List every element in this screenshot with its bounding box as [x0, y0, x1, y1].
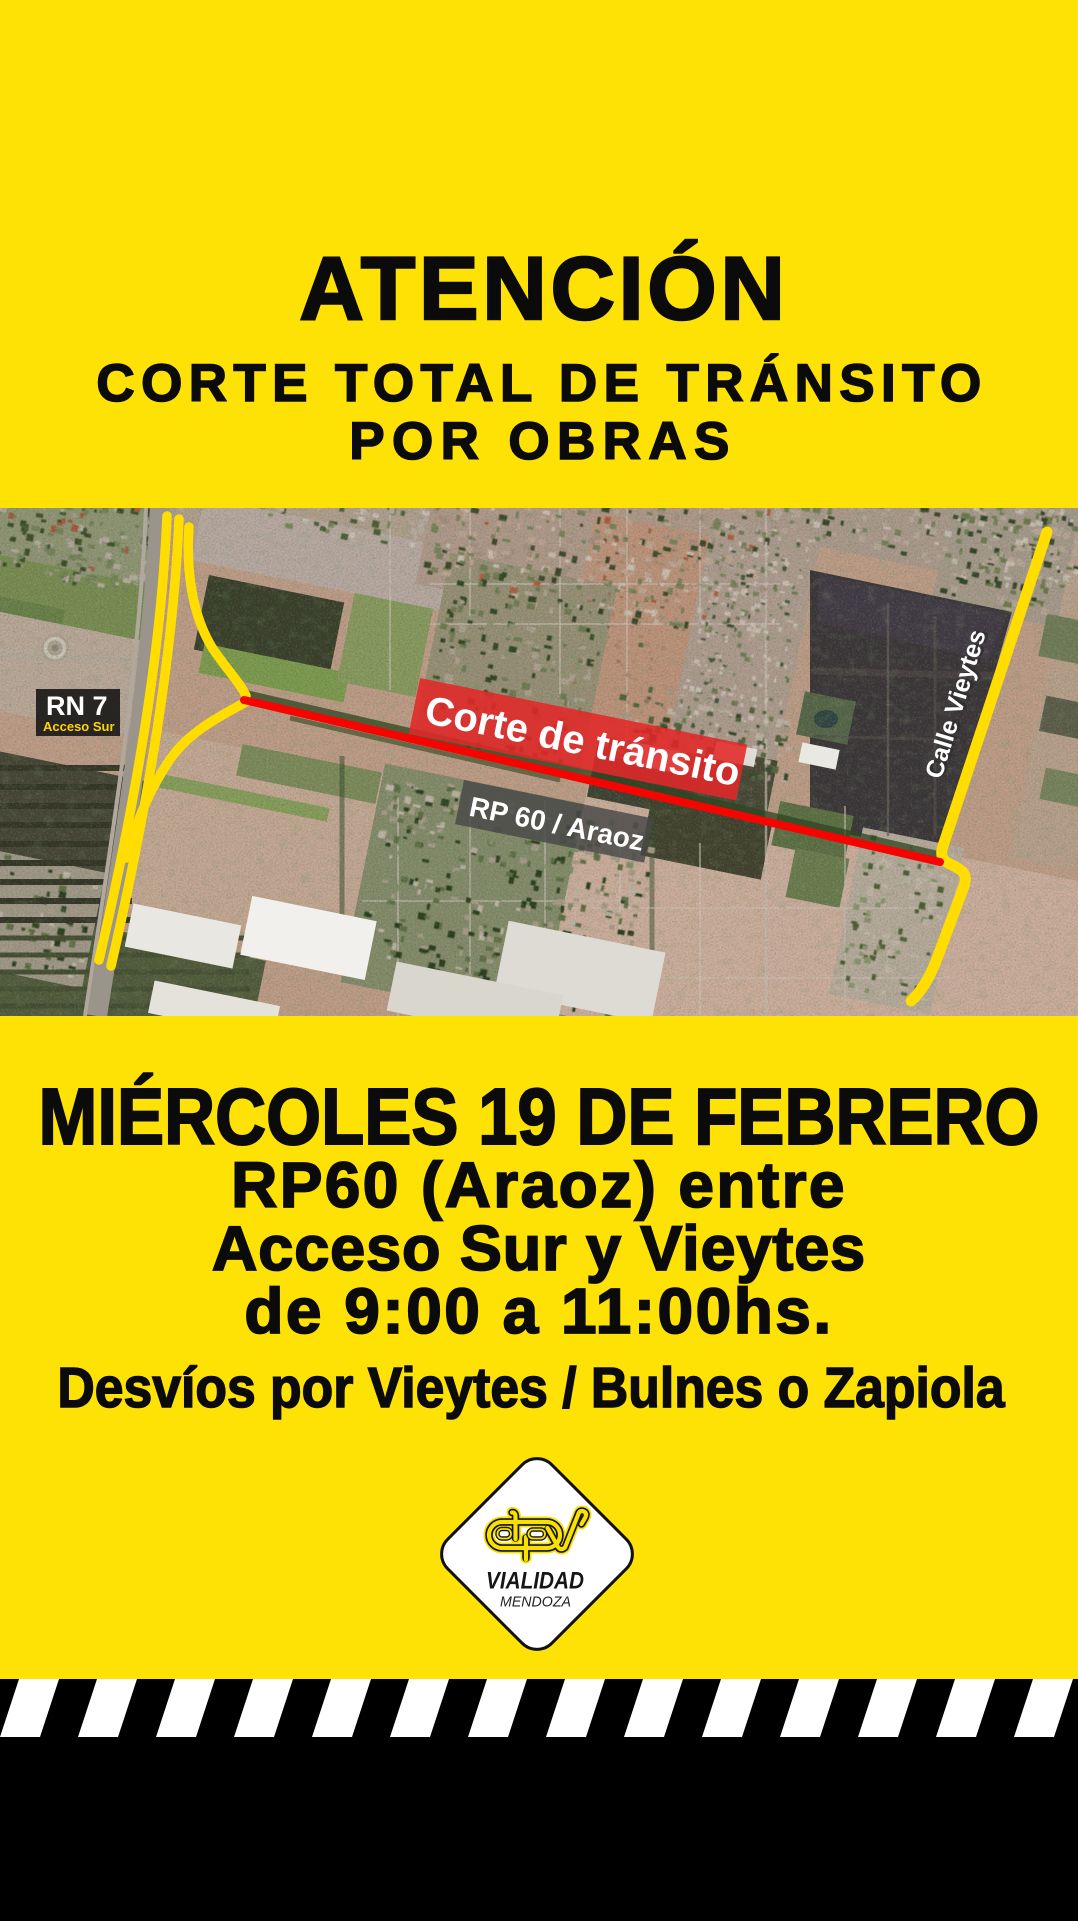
svg-text:Acceso Sur: Acceso Sur: [43, 719, 115, 734]
svg-text:MENDOZA: MENDOZA: [500, 1594, 571, 1611]
svg-text:VIALIDAD: VIALIDAD: [486, 1568, 584, 1595]
svg-text:RN 7: RN 7: [46, 691, 108, 721]
